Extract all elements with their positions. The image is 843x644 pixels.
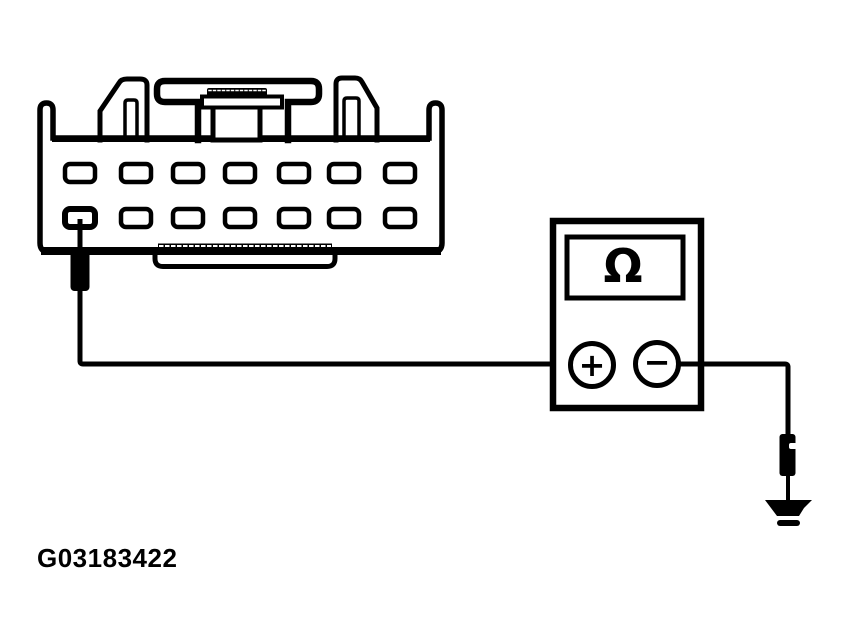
test-probe-right [780, 434, 796, 476]
latch-tab-right-notch [344, 98, 359, 140]
multimeter: Ω + − [553, 221, 701, 408]
pin-row-1 [65, 164, 415, 182]
latch-crossbar [202, 97, 282, 108]
latch-tab-left-notch [125, 100, 137, 140]
pin-row-2 [65, 209, 415, 227]
wire-connector-to-meter [80, 289, 571, 364]
pin-slot [329, 209, 359, 227]
pin-slot [279, 164, 309, 182]
wiring-diagram-page: Ω + − G03183422 [0, 0, 843, 644]
pin-slot [173, 164, 203, 182]
pin-slot [121, 209, 151, 227]
positive-terminal-label: + [579, 346, 606, 384]
pin-slot [225, 209, 255, 227]
pin-slot [279, 209, 309, 227]
pin-slot [329, 164, 359, 182]
figure-code: G03183422 [37, 543, 177, 574]
test-probe-right-notch [789, 443, 797, 449]
negative-terminal-label: − [644, 343, 671, 381]
left-test-lead [71, 219, 572, 364]
latch-grip-bar [207, 88, 267, 98]
pin-slot [385, 209, 415, 227]
test-probe-left [71, 251, 90, 291]
pin-slot [385, 164, 415, 182]
pin-slot [225, 164, 255, 182]
ohm-symbol: Ω [603, 239, 642, 293]
connector [40, 78, 442, 267]
ground-icon [765, 500, 812, 526]
pin-slot [65, 164, 95, 182]
latch-tab-right [336, 78, 377, 140]
bottom-tab [155, 254, 335, 267]
pin-slot [121, 164, 151, 182]
pin-slot [173, 209, 203, 227]
